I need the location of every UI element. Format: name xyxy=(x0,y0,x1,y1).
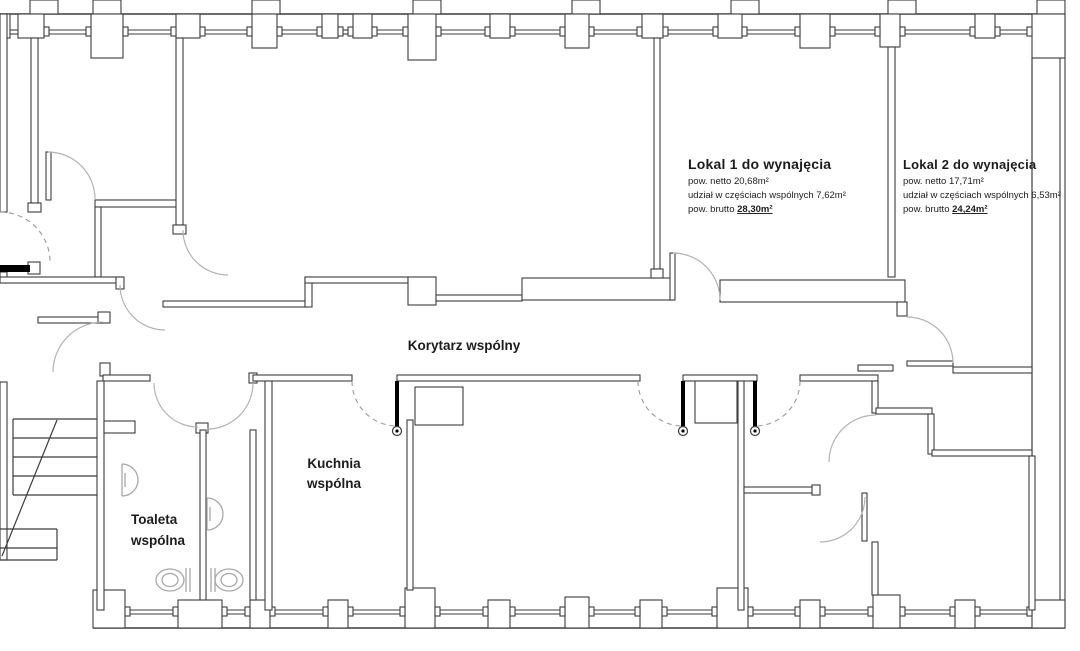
lokal1-area-gross: pow. brutto 28,30m² xyxy=(688,204,773,215)
lokal2-area-gross: pow. brutto 24,24m² xyxy=(903,204,988,215)
lokal1-share-common: udział w częściach wspólnych 7,62m² xyxy=(688,190,846,201)
floor-plan-page: Korytarz wspólny Kuchnia wspólna Toaleta… xyxy=(0,0,1080,651)
lokal2-area-net: pow. netto 17,71m² xyxy=(903,176,984,187)
floor-plan-drawing: Korytarz wspólny Kuchnia wspólna Toaleta… xyxy=(0,0,1080,651)
staircase-symbol xyxy=(0,419,97,560)
bathroom-fixtures xyxy=(122,464,243,592)
lokal1-area-net: pow. netto 20,68m² xyxy=(688,176,769,187)
toilet-label-line2: wspólna xyxy=(130,533,185,548)
lokal1-title: Lokal 1 do wynajęcia xyxy=(688,156,831,172)
lokal2-label-block: Lokal 2 do wynajęcia pow. netto 17,71m² … xyxy=(903,157,1061,215)
kitchen-label-line2: wspólna xyxy=(306,476,361,491)
lokal2-area-gross-value: 24,24m² xyxy=(952,204,987,215)
kitchen-label-line1: Kuchnia xyxy=(307,456,361,471)
lokal1-area-gross-value: 28,30m² xyxy=(737,204,772,215)
lokal1-area-gross-prefix: pow. brutto xyxy=(688,204,737,215)
lokal2-area-gross-prefix: pow. brutto xyxy=(903,204,952,215)
toilet-label-line1: Toaleta xyxy=(131,512,178,527)
corridor-label: Korytarz wspólny xyxy=(408,338,521,353)
lokal2-title: Lokal 2 do wynajęcia xyxy=(903,157,1037,172)
lokal2-share-common: udział w częściach wspólnych 6,53m² xyxy=(903,190,1061,201)
lokal1-label-block: Lokal 1 do wynajęcia pow. netto 20,68m² … xyxy=(688,156,846,215)
